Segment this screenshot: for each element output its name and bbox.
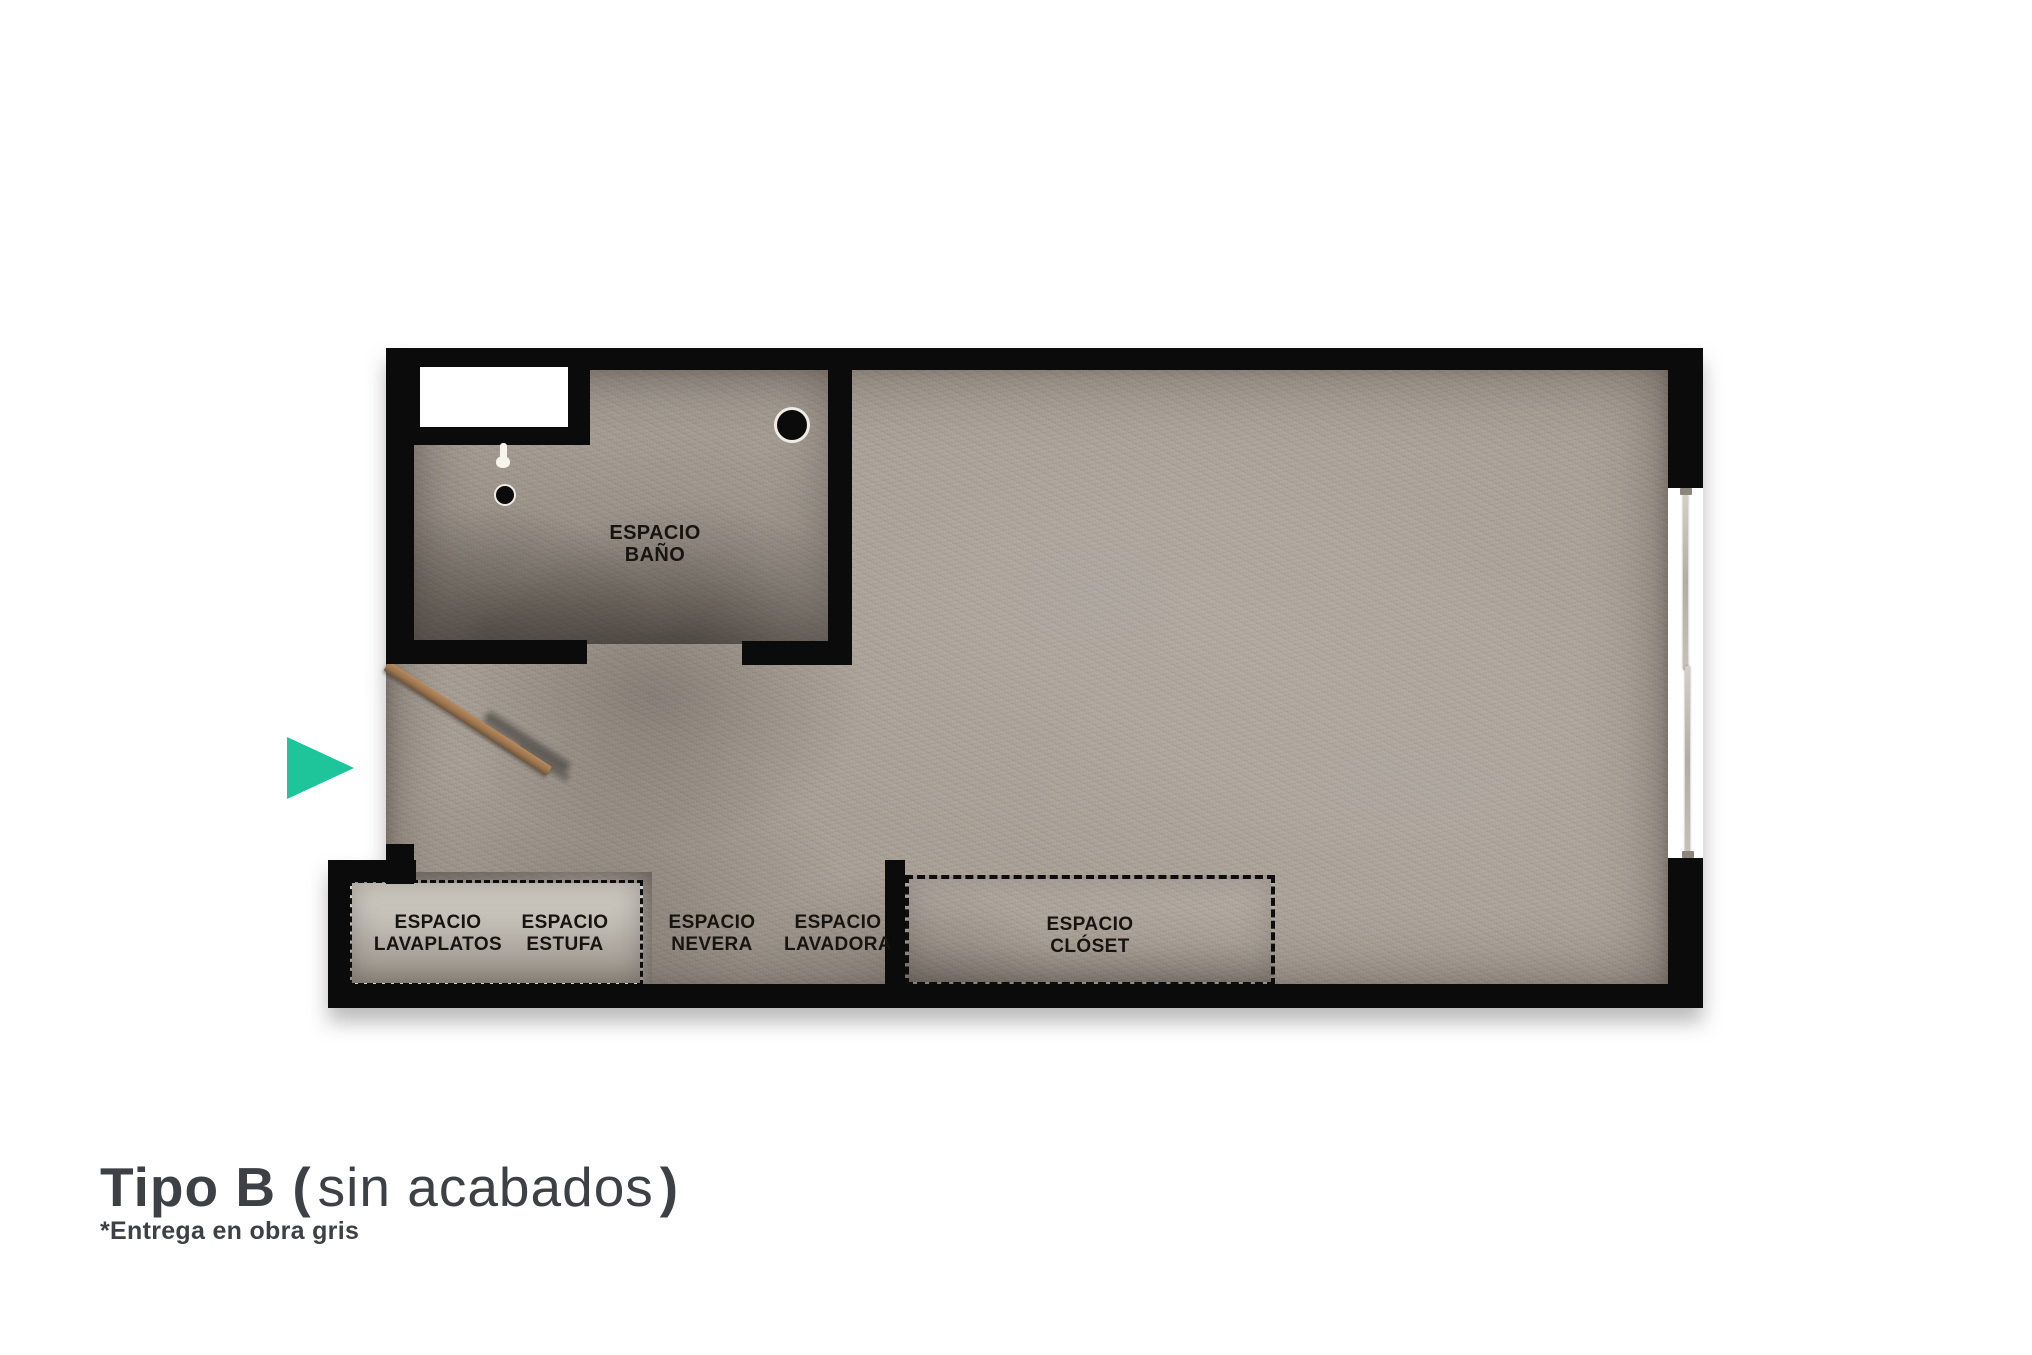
window-frame-cap [1682,851,1694,858]
wall-bathroom-south-right [742,641,852,665]
window [1668,488,1703,858]
label-estufa: ESPACIO ESTUFA [480,912,650,956]
label-lavadora: ESPACIO LAVADORA [753,912,923,956]
wall-bottom [328,984,1703,1008]
page: ESPACIO BAÑO ESPACIO LAVAPLATOS ESPACIO … [0,0,2032,1355]
title-regular: sin acabados [318,1156,654,1218]
label-line: BAÑO [570,544,740,566]
title-bold-close: ) [660,1156,679,1218]
wall-bathroom-south-left [414,640,587,664]
label-closet: ESPACIO CLÓSET [1005,914,1175,958]
label-line: ESPACIO [480,912,650,934]
shower-niche-opening [420,367,568,427]
label-line: ESTUFA [480,934,650,956]
wall-kitchen-left [328,860,350,1008]
wall-kitchen-top [328,860,416,882]
floor-drain-icon [494,484,516,506]
label-line: ESPACIO [570,522,740,544]
label-bano: ESPACIO BAÑO [570,522,740,566]
label-line: LAVADORA [753,934,923,956]
title-bold-open: Tipo B ( [100,1156,312,1218]
wall-bathroom-east [828,363,852,665]
wall-right-upper [1668,348,1703,490]
page-subtitle: *Entrega en obra gris [100,1216,359,1246]
label-line: ESPACIO [1005,914,1175,936]
floor-plan: ESPACIO BAÑO ESPACIO LAVAPLATOS ESPACIO … [328,348,1703,1008]
toilet-drain-icon [774,407,810,443]
window-sash [1685,666,1690,856]
shower-head-icon [496,456,510,468]
label-line: ESPACIO [753,912,923,934]
window-sash [1683,494,1688,670]
label-line: CLÓSET [1005,936,1175,958]
page-title: Tipo B (sin acabados) [100,1156,679,1218]
window-frame-cap [1680,488,1692,495]
